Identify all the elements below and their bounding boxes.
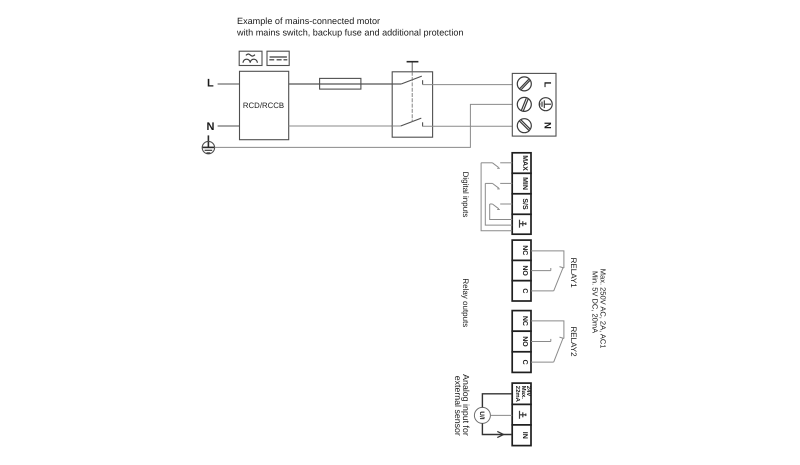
svg-text:C: C — [521, 288, 528, 293]
svg-text:RELAY2: RELAY2 — [569, 326, 578, 357]
svg-text:N: N — [541, 122, 552, 129]
svg-text:NO: NO — [521, 265, 528, 276]
svg-text:L: L — [541, 82, 552, 88]
svg-text:S/S: S/S — [521, 198, 529, 210]
svg-text:NO: NO — [521, 336, 528, 347]
svg-text:external sensor: external sensor — [453, 376, 463, 436]
svg-text:L: L — [207, 77, 214, 89]
svg-text:C: C — [521, 360, 528, 365]
svg-text:MAX: MAX — [521, 155, 528, 171]
svg-text:IN: IN — [521, 432, 528, 439]
svg-text:RELAY1: RELAY1 — [569, 258, 578, 289]
svg-text:N: N — [207, 121, 215, 133]
svg-text:Example of mains-connected mot: Example of mains-connected motor — [237, 16, 380, 26]
svg-text:MIN: MIN — [521, 177, 528, 190]
svg-text:U/I: U/I — [478, 411, 485, 420]
svg-text:Min. 5V DC, 20mA: Min. 5V DC, 20mA — [590, 271, 599, 333]
svg-text:with mains switch, backup fuse: with mains switch, backup fuse and addit… — [236, 27, 463, 37]
svg-text:NC: NC — [521, 245, 528, 255]
svg-text:Max.: Max. — [520, 386, 527, 399]
svg-text:Digital inputs: Digital inputs — [461, 172, 470, 218]
svg-text:NC: NC — [521, 316, 528, 326]
svg-text:22mA: 22mA — [514, 386, 521, 403]
svg-text:Relay outputs: Relay outputs — [461, 278, 470, 327]
svg-text:RCD/RCCB: RCD/RCCB — [243, 101, 284, 110]
